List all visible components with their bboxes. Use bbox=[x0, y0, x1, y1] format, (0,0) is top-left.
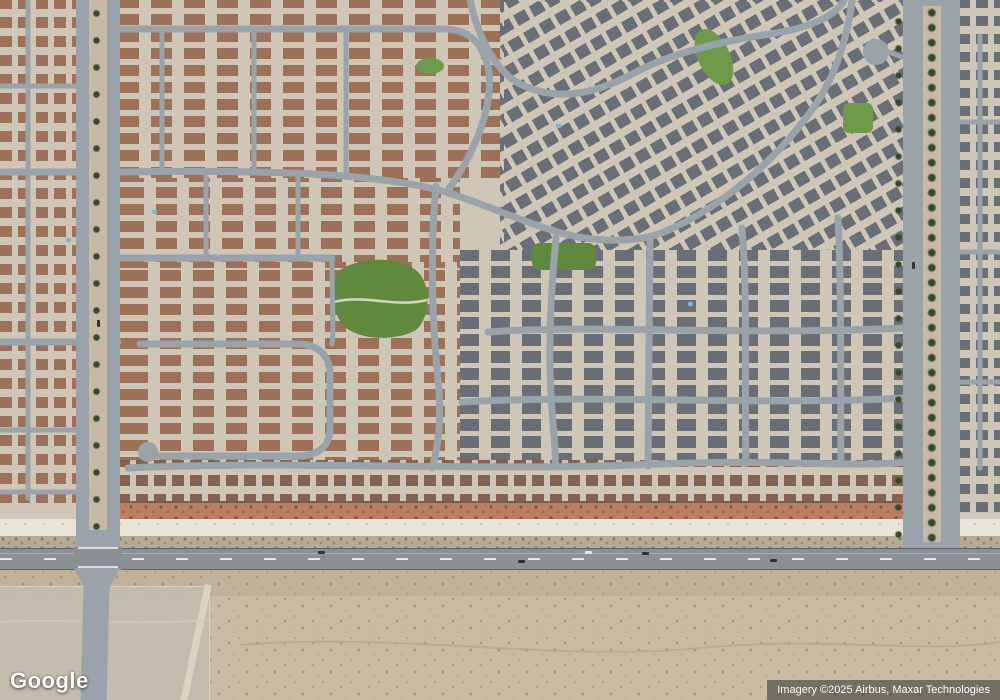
street-path bbox=[838, 218, 841, 462]
right-arterial-road bbox=[903, 0, 960, 548]
street-path bbox=[128, 462, 905, 468]
street-path bbox=[742, 228, 746, 464]
street-path bbox=[140, 344, 330, 456]
streets bbox=[0, 0, 1000, 498]
landscape-strip bbox=[112, 501, 934, 519]
track-path bbox=[240, 642, 1000, 652]
lane-line bbox=[0, 553, 1000, 554]
vehicle bbox=[770, 559, 777, 562]
park bbox=[416, 58, 444, 74]
crosswalk bbox=[78, 547, 118, 549]
park bbox=[687, 23, 741, 91]
cul-de-sac bbox=[138, 442, 158, 462]
vehicle bbox=[318, 551, 325, 554]
highway-road bbox=[0, 548, 1000, 570]
street-path bbox=[488, 328, 905, 332]
vehicle bbox=[585, 551, 592, 554]
parks bbox=[333, 23, 873, 338]
street-path bbox=[332, 258, 333, 344]
street-path bbox=[648, 236, 650, 466]
street-path bbox=[462, 398, 905, 402]
cul-de-sac bbox=[863, 39, 889, 65]
left-arterial-road bbox=[76, 0, 120, 568]
park bbox=[532, 243, 596, 270]
street-path bbox=[432, 186, 440, 468]
road-median-trees bbox=[89, 0, 107, 530]
dirt-shoulder bbox=[0, 519, 1000, 536]
map-canvas[interactable]: Google Imagery ©2025 Airbus, Maxar Techn… bbox=[0, 0, 1000, 700]
street-path bbox=[446, 29, 489, 190]
imagery-attribution: Imagery ©2025 Airbus, Maxar Technologies bbox=[767, 680, 1000, 700]
scrub-band bbox=[0, 536, 1000, 548]
road-median-trees bbox=[923, 6, 941, 542]
vehicle bbox=[518, 560, 525, 563]
street-tree-row bbox=[891, 8, 903, 538]
park bbox=[843, 103, 873, 133]
street-path bbox=[550, 238, 556, 466]
vehicle bbox=[642, 552, 649, 555]
vehicle bbox=[912, 262, 915, 269]
vehicle bbox=[97, 320, 100, 327]
google-logo[interactable]: Google bbox=[10, 668, 89, 694]
street-path bbox=[118, 171, 664, 240]
lane-dashes bbox=[0, 558, 1000, 560]
street-path bbox=[470, 0, 844, 94]
